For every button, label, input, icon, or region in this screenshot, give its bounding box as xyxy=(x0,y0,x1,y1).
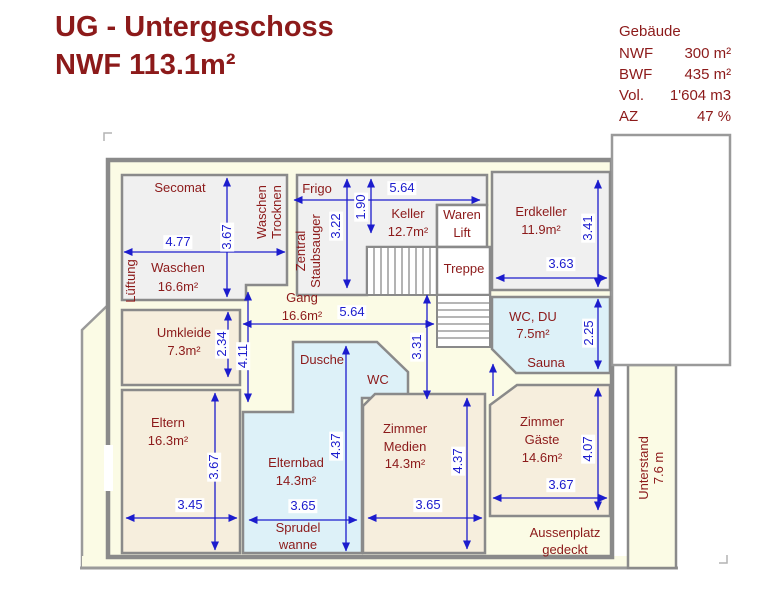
info-row-az: AZ47 % xyxy=(619,106,731,127)
room-label-zentral-staubsauger-2: Staubsauger xyxy=(309,214,323,288)
dim-zimmer-medien-height: 4.37 xyxy=(451,446,465,475)
dim-zimmer-gaeste-height: 4.07 xyxy=(581,434,595,463)
dim-umkleide-height: 2.34 xyxy=(215,329,229,358)
room-label-eltern: Eltern xyxy=(151,416,185,430)
room-label-zimmer-medien-1: Zimmer xyxy=(383,422,427,436)
room-label-zimmer-gaeste-1: Zimmer xyxy=(520,415,564,429)
label-unterstand-1: Unterstand xyxy=(637,436,651,500)
outdoor-left-area xyxy=(82,305,108,568)
room-area-zimmer-gaeste: 14.6m² xyxy=(522,451,562,465)
label-aussenplatz-2: gedeckt xyxy=(542,543,588,557)
info-row-value: 300 m² xyxy=(659,43,731,64)
room-label-keller: Keller xyxy=(391,207,424,221)
room-label-waren: Waren xyxy=(443,208,481,222)
room-label-umkleide: Umkleide xyxy=(157,326,211,340)
room-area-eltern: 16.3m² xyxy=(148,434,188,448)
info-row-label: AZ xyxy=(619,106,659,127)
label-unterstand-2: 7.6 m xyxy=(652,452,666,485)
room-label-treppe: Treppe xyxy=(444,262,485,276)
info-row-label: BWF xyxy=(619,64,659,85)
crop-mark-top-left xyxy=(104,133,112,141)
building-info-box: Gebäude NWF300 m²BWF435 m²Vol.1'604 m3AZ… xyxy=(619,21,731,127)
room-label-elternbad: Elternbad xyxy=(268,456,324,470)
info-row-bwf: BWF435 m² xyxy=(619,64,731,85)
room-area-keller: 12.7m² xyxy=(388,225,428,239)
room-label-frigo: Frigo xyxy=(302,182,332,196)
building-info-table: NWF300 m²BWF435 m²Vol.1'604 m3AZ47 % xyxy=(619,43,731,127)
title-line-2: NWF 113.1m² xyxy=(55,46,334,84)
room-label-sprudelwanne-2: wanne xyxy=(279,538,317,552)
info-row-value: 435 m² xyxy=(659,64,731,85)
room-label-lift: Lift xyxy=(453,226,470,240)
dim-waschen-height: 3.67 xyxy=(220,222,234,251)
page-title: UG - Untergeschoss NWF 113.1m² xyxy=(55,8,334,85)
room-label-erdkeller: Erdkeller xyxy=(515,205,566,219)
dim-waschen-width: 4.77 xyxy=(163,235,192,249)
dim-zimmer-medien-width: 3.65 xyxy=(413,498,442,512)
dim-erdkeller-height: 3.41 xyxy=(581,213,595,242)
room-area-elternbad: 14.3m² xyxy=(276,474,316,488)
room-label-secomat: Secomat xyxy=(154,181,205,195)
room-label-waschen-trocknen-2: Trocknen xyxy=(270,185,284,239)
room-area-erdkeller: 11.9m² xyxy=(521,223,561,237)
room-label-dusche: Dusche xyxy=(300,353,344,367)
room-area-umkleide: 7.3m² xyxy=(167,344,200,358)
room-label-zimmer-gaeste-2: Gäste xyxy=(525,433,560,447)
dim-gang-width: 5.64 xyxy=(337,305,366,319)
dim-eltern-width: 3.45 xyxy=(175,498,204,512)
dim-gang-height-right: 3.31 xyxy=(410,332,424,361)
terrace-outline xyxy=(612,135,730,365)
dim-zimmer-gaeste-width: 3.67 xyxy=(546,478,575,492)
room-area-wc-du: 7.5m² xyxy=(516,327,549,341)
info-row-label: NWF xyxy=(619,43,659,64)
dim-frigo-height: 3.22 xyxy=(329,211,343,240)
dim-wc-du-height: 2.25 xyxy=(582,318,596,347)
room-label-zentral-staubsauger-1: Zentral xyxy=(294,231,308,271)
dim-elternbad-width: 3.65 xyxy=(288,499,317,513)
label-aussenplatz-1: Aussenplatz xyxy=(530,526,601,540)
room-area-waschen: 16.6m² xyxy=(158,280,198,294)
room-label-waschen-trocknen-1: Waschen xyxy=(255,185,269,239)
room-label-sprudelwanne-1: Sprudel xyxy=(276,521,321,535)
dim-elternbad-height: 4.37 xyxy=(329,431,343,460)
crop-mark-bottom-right xyxy=(719,555,727,563)
room-area-zimmer-medien: 14.3m² xyxy=(385,457,425,471)
window-opening xyxy=(104,445,113,491)
info-row-nwf: NWF300 m² xyxy=(619,43,731,64)
room-label-lueftung: Lüftung xyxy=(124,259,138,302)
room-label-gang: Gang xyxy=(286,291,318,305)
room-label-sauna: Sauna xyxy=(527,356,565,370)
info-row-label: Vol. xyxy=(619,85,659,106)
dim-erdkeller-width: 3.63 xyxy=(546,257,575,271)
title-line-1: UG - Untergeschoss xyxy=(55,8,334,46)
dim-eltern-height: 3.67 xyxy=(207,452,221,481)
building-info-heading: Gebäude xyxy=(619,21,731,42)
room-label-wc: WC xyxy=(367,373,389,387)
dim-frigo-depth: 1.90 xyxy=(354,192,368,221)
room-label-zimmer-medien-2: Medien xyxy=(384,440,427,454)
info-row-vol: Vol.1'604 m3 xyxy=(619,85,731,106)
room-area-gang: 16.6m² xyxy=(282,309,322,323)
floor-plan-page: UG - Untergeschoss NWF 113.1m² Gebäude N… xyxy=(0,0,784,600)
room-label-wc-du: WC, DU xyxy=(509,310,557,324)
dim-gang-height-left: 4.11 xyxy=(236,342,250,370)
info-row-value: 47 % xyxy=(659,106,731,127)
info-row-value: 1'604 m3 xyxy=(659,85,731,106)
dim-keller-width: 5.64 xyxy=(387,181,416,195)
room-label-waschen: Waschen xyxy=(151,261,205,275)
